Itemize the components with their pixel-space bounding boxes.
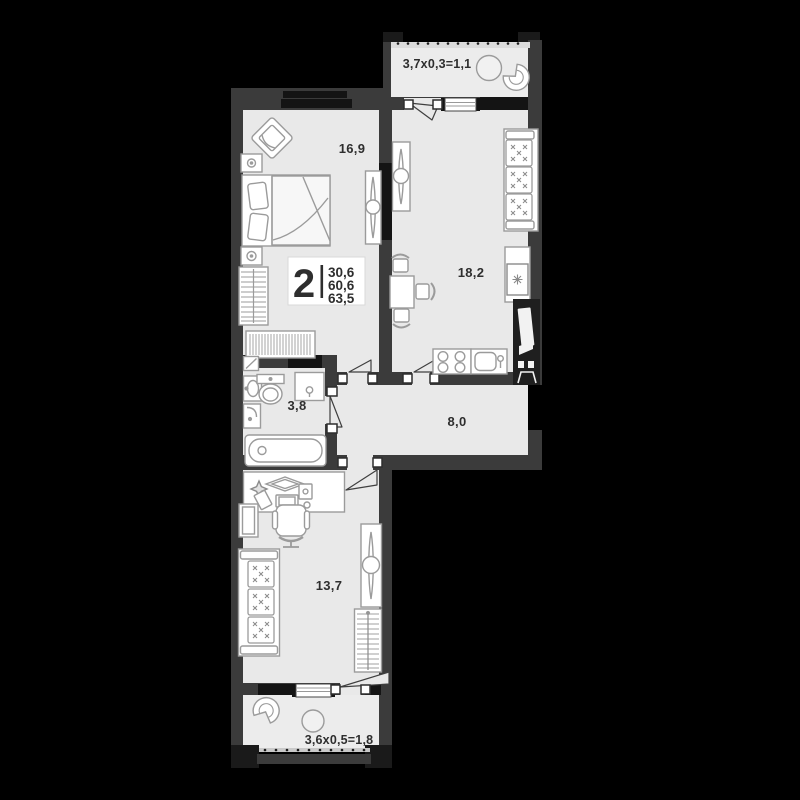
stove-icon (433, 349, 471, 374)
floorplan-svg: 2 30,6 60,6 63,5 16,9 18,2 3,8 8,0 13,7 … (0, 0, 800, 800)
balcony-bottom-table-icon (302, 710, 324, 732)
bathroom-area-label: 3,8 (288, 398, 307, 413)
balcony-top-table-icon (477, 56, 502, 81)
bathtub-icon (245, 435, 326, 466)
washing-machine-icon (295, 373, 324, 401)
boiler-icon (244, 404, 261, 428)
balcony-bottom-dim-label: 3,6х0,5=1,8 (305, 733, 374, 747)
room-hallway-floor (337, 385, 528, 455)
unit-badge: 2 30,6 60,6 63,5 (288, 257, 365, 306)
kitchen-sink-icon (471, 349, 507, 374)
shoe-rack-icon (246, 331, 315, 358)
balcony-top-railing (391, 42, 530, 48)
badge-rooms-count: 2 (293, 262, 315, 306)
balcony-top-dim-label: 3,7х0,3=1,1 (403, 57, 472, 71)
corner-shelf-icon (244, 357, 259, 371)
badge-area-3: 63,5 (328, 291, 355, 306)
balcony-bottom-railing (259, 748, 370, 752)
kitchen-balcony-window (441, 98, 480, 111)
kitchen-sofa-icon (504, 129, 538, 231)
fridge-icon (505, 247, 530, 302)
nightstand-bottom-icon (241, 247, 262, 265)
mirror-cabinet-bedroom-icon (366, 171, 382, 244)
floorplan-canvas: 2 30,6 60,6 63,5 16,9 18,2 3,8 8,0 13,7 … (0, 0, 800, 800)
tall-cabinet-kitchen-icon (393, 142, 411, 211)
toilet-icon (257, 375, 284, 405)
dining-table (390, 276, 414, 308)
living-balcony-window (292, 684, 335, 697)
hallway-area-label: 8,0 (448, 414, 467, 429)
bed-icon (242, 175, 330, 246)
kitchen-area-label: 18,2 (458, 265, 485, 280)
mirror-cabinet-living-icon (361, 524, 382, 607)
living-area-label: 13,7 (316, 578, 343, 593)
nightstand-top-icon (241, 154, 262, 172)
living-sofa-icon (239, 549, 280, 656)
hanger-rack-icon (239, 267, 268, 325)
bedroom-area-label: 16,9 (339, 141, 366, 156)
dresser-icon (355, 609, 382, 672)
entry-door-icon (513, 299, 540, 385)
balcony-top-floor (391, 46, 528, 97)
wall-shelf-icon (239, 504, 258, 537)
